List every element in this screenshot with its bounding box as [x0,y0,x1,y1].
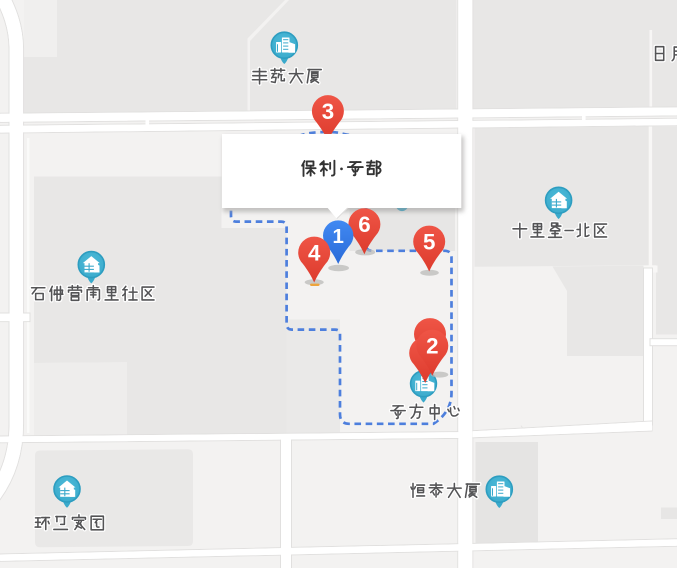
svg-text:1: 1 [332,225,343,248]
svg-text:2: 2 [426,334,438,359]
svg-text:5: 5 [423,230,435,255]
svg-text:6: 6 [358,212,370,237]
svg-text:4: 4 [308,241,321,266]
svg-text:3: 3 [322,99,334,124]
